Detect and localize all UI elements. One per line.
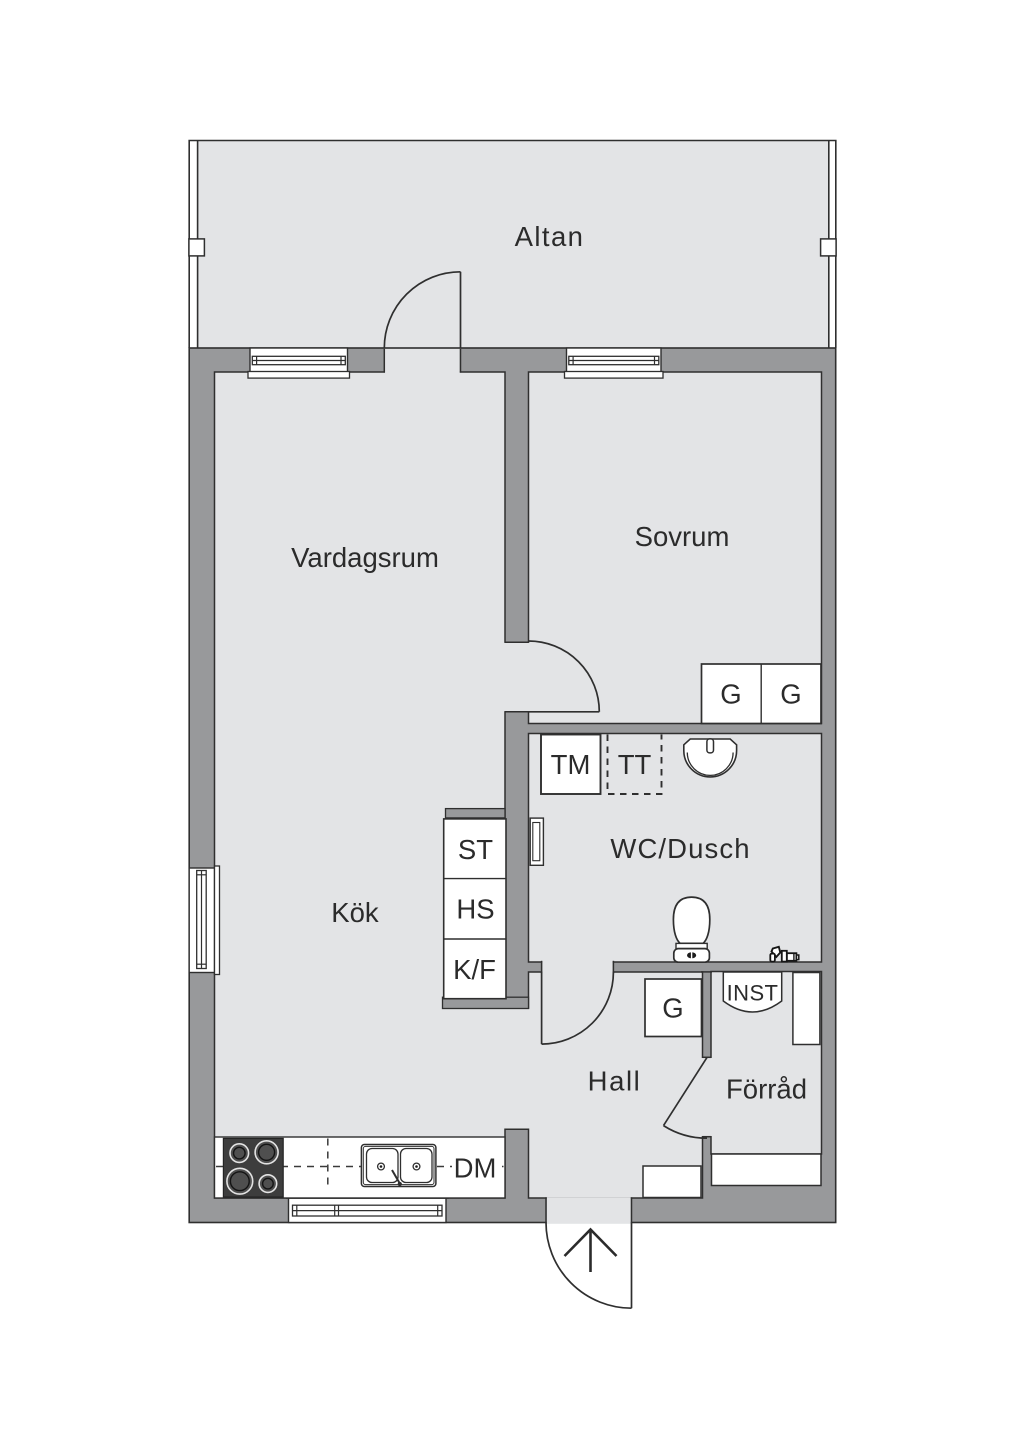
svg-text:ST: ST (458, 834, 493, 865)
svg-text:Hall: Hall (588, 1066, 642, 1097)
svg-text:G: G (662, 992, 683, 1023)
svg-text:TT: TT (618, 749, 652, 780)
svg-text:Kök: Kök (331, 897, 379, 928)
svg-text:HS: HS (456, 893, 494, 924)
svg-text:Sovrum: Sovrum (635, 521, 730, 552)
svg-text:Vardagsrum: Vardagsrum (291, 542, 439, 573)
svg-text:DM: DM (454, 1153, 497, 1184)
svg-text:Förråd: Förråd (726, 1074, 807, 1105)
svg-text:INST: INST (727, 981, 779, 1006)
svg-text:TM: TM (551, 749, 591, 780)
svg-text:K/F: K/F (453, 954, 496, 985)
svg-text:Altan: Altan (515, 221, 585, 252)
svg-text:G: G (720, 679, 741, 710)
svg-text:WC/Dusch: WC/Dusch (610, 833, 750, 864)
svg-text:G: G (780, 679, 801, 710)
